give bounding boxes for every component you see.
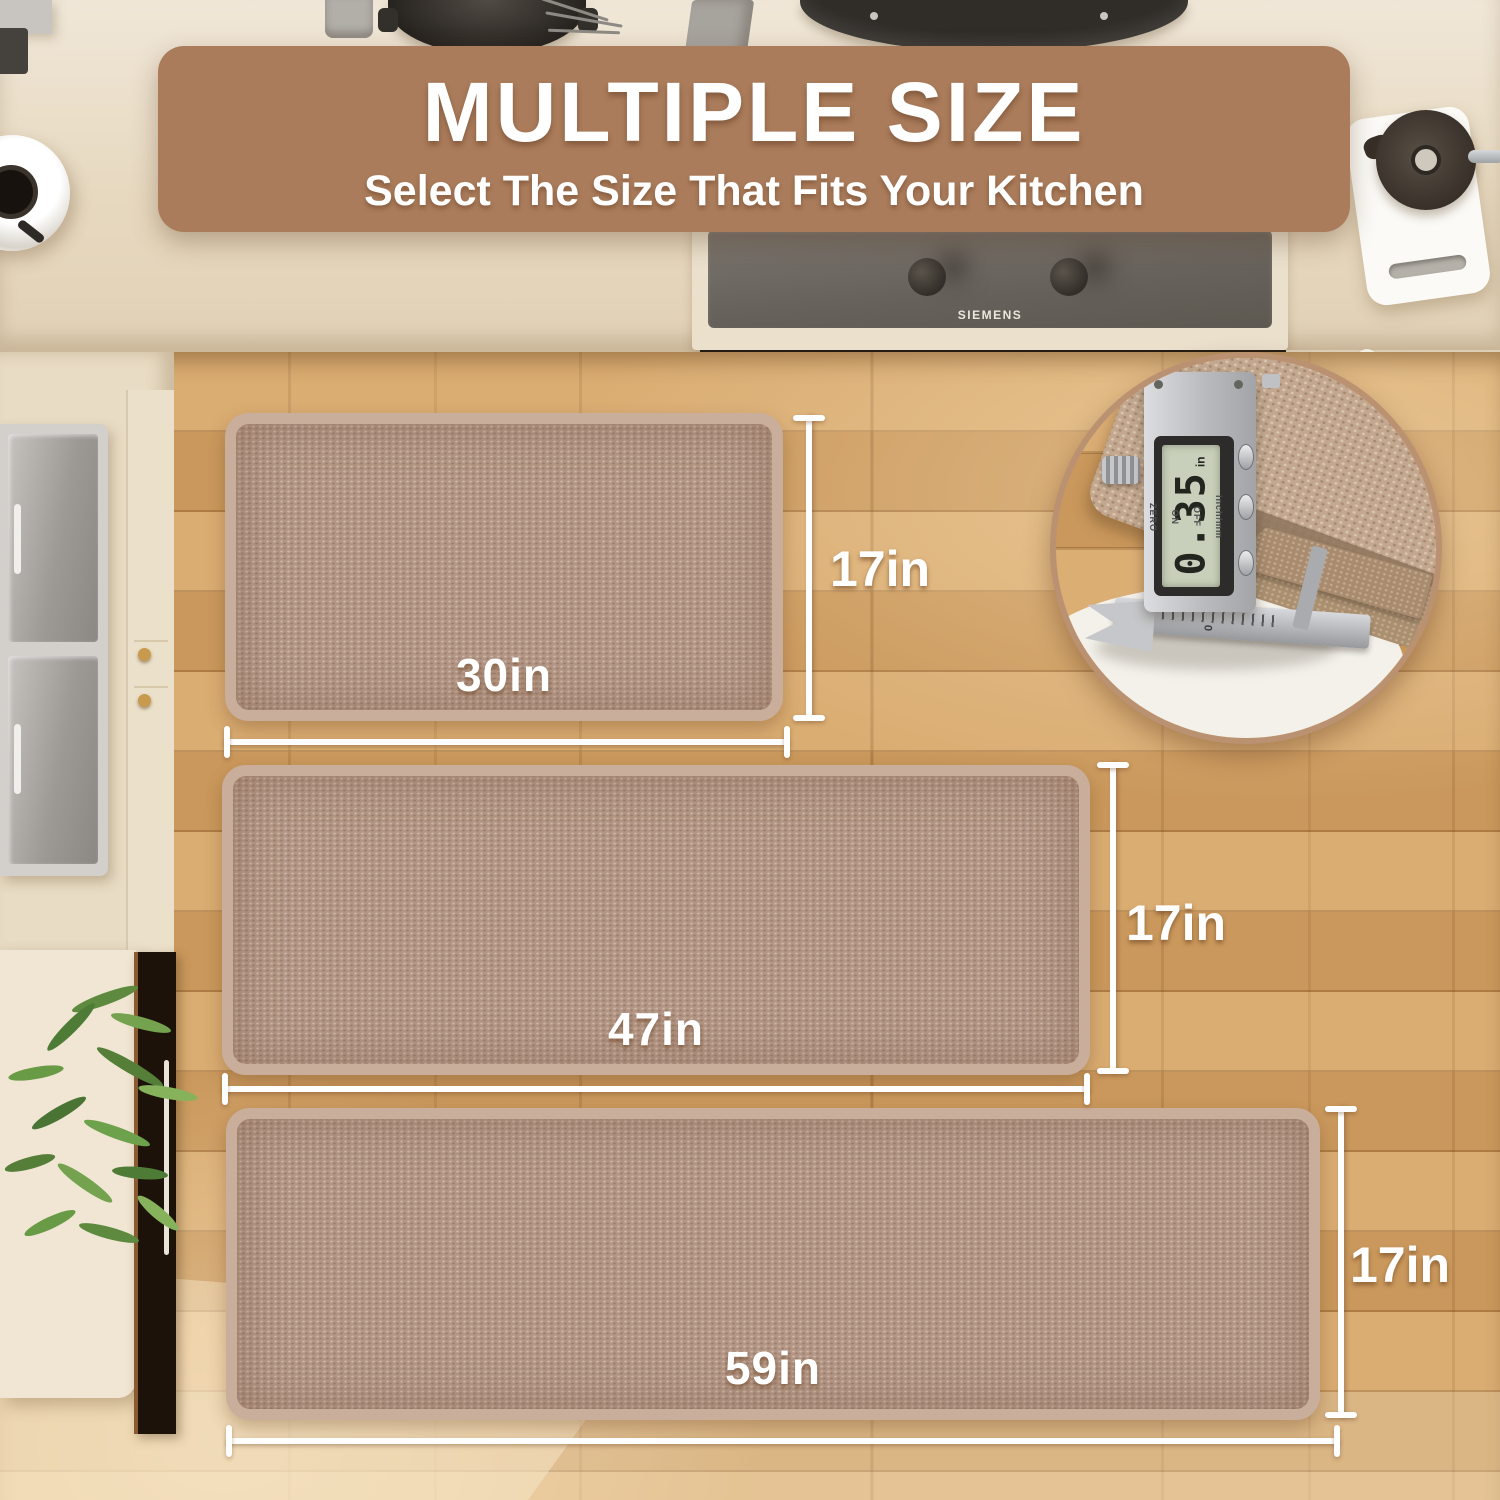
stainless-appliance [0,424,108,876]
thickness-inset-circle: 0 0.35 in inch/mm OFF ON ZERO [1050,352,1442,744]
caliper-zero-label: ZERO [1148,503,1158,532]
coffee-grinder-top [0,135,70,251]
caliper-screw [1154,380,1163,389]
height-dimension-line-middle [1110,762,1116,1074]
caliper-button [1238,494,1254,520]
kettle-lid-knob [1411,145,1441,175]
pan-rivet [1100,12,1108,20]
shelf-handle [164,1060,169,1255]
wall-device [0,28,28,74]
caliper-thumbwheel [1102,456,1140,484]
appliance-handle [14,724,21,794]
appliance-door-top [8,434,98,642]
caliper-depth-rod [1262,374,1280,388]
caliper-button-labels: inch/mm OFF ON ZERO [1208,432,1224,602]
banner-subtitle: Select The Size That Fits Your Kitchen [364,170,1144,213]
caliper-button [1238,444,1254,470]
mat-width-label: 59in [237,1341,1309,1395]
mat-width-label: 30in [236,648,772,702]
width-dimension-line-59in [226,1438,1340,1444]
kettle-handle [1468,150,1500,163]
kettle-lid [1376,110,1476,210]
height-dimension-line-top [806,415,812,721]
mat-59in: 59in [226,1108,1320,1420]
height-label-middle: 17in [1126,894,1226,952]
appliance-handle [14,504,21,574]
mat-width-label: 47in [233,1002,1079,1056]
black-pan [800,0,1188,52]
caliper-button [1238,550,1254,576]
caliper-reading-unit: in [1193,457,1207,468]
headline-banner: MULTIPLE SIZE Select The Size That Fits … [158,46,1350,232]
height-dimension-line-bottom [1338,1106,1344,1418]
open-shelf [134,952,176,1434]
cabinet-doors [126,390,174,956]
cooktop-panel: SIEMENS [708,230,1272,328]
grinder-hopper [0,165,38,219]
kitchen-island [0,950,136,1398]
height-label-top: 17in [830,540,930,598]
caliper-off-label: OFF [1192,507,1202,528]
stove-knob-right [1050,258,1088,296]
pan-rivet [870,12,878,20]
cabinet-knob [138,694,151,707]
mat-47in: 47in [222,765,1090,1075]
kettle-display [1388,254,1467,280]
caliper-scale-zero: 0 [1203,625,1215,632]
width-dimension-line-47in [222,1086,1090,1092]
banner-title: MULTIPLE SIZE [423,70,1086,154]
appliance-door-bottom [8,656,98,864]
grinder-lever [16,219,45,245]
utensil-holder [325,0,373,38]
caliper-screw [1234,380,1243,389]
product-size-infographic: SIEMENS [0,0,1500,1500]
door-seam [134,686,168,688]
caliper-body: 0.35 in inch/mm OFF ON ZERO [1144,372,1256,612]
height-label-bottom: 17in [1350,1236,1450,1294]
width-dimension-line-30in [224,739,790,745]
cooktop: SIEMENS [692,220,1288,350]
stove-knob-left [908,258,946,296]
caliper-mode-label: inch/mm [1214,495,1224,539]
door-seam [134,640,168,642]
mat-30in: 30in [225,413,783,721]
stove-brand-label: SIEMENS [708,308,1272,322]
pot-handle-left [378,8,398,32]
cabinet-knob [138,648,151,661]
caliper-on-label: ON [1170,509,1180,525]
